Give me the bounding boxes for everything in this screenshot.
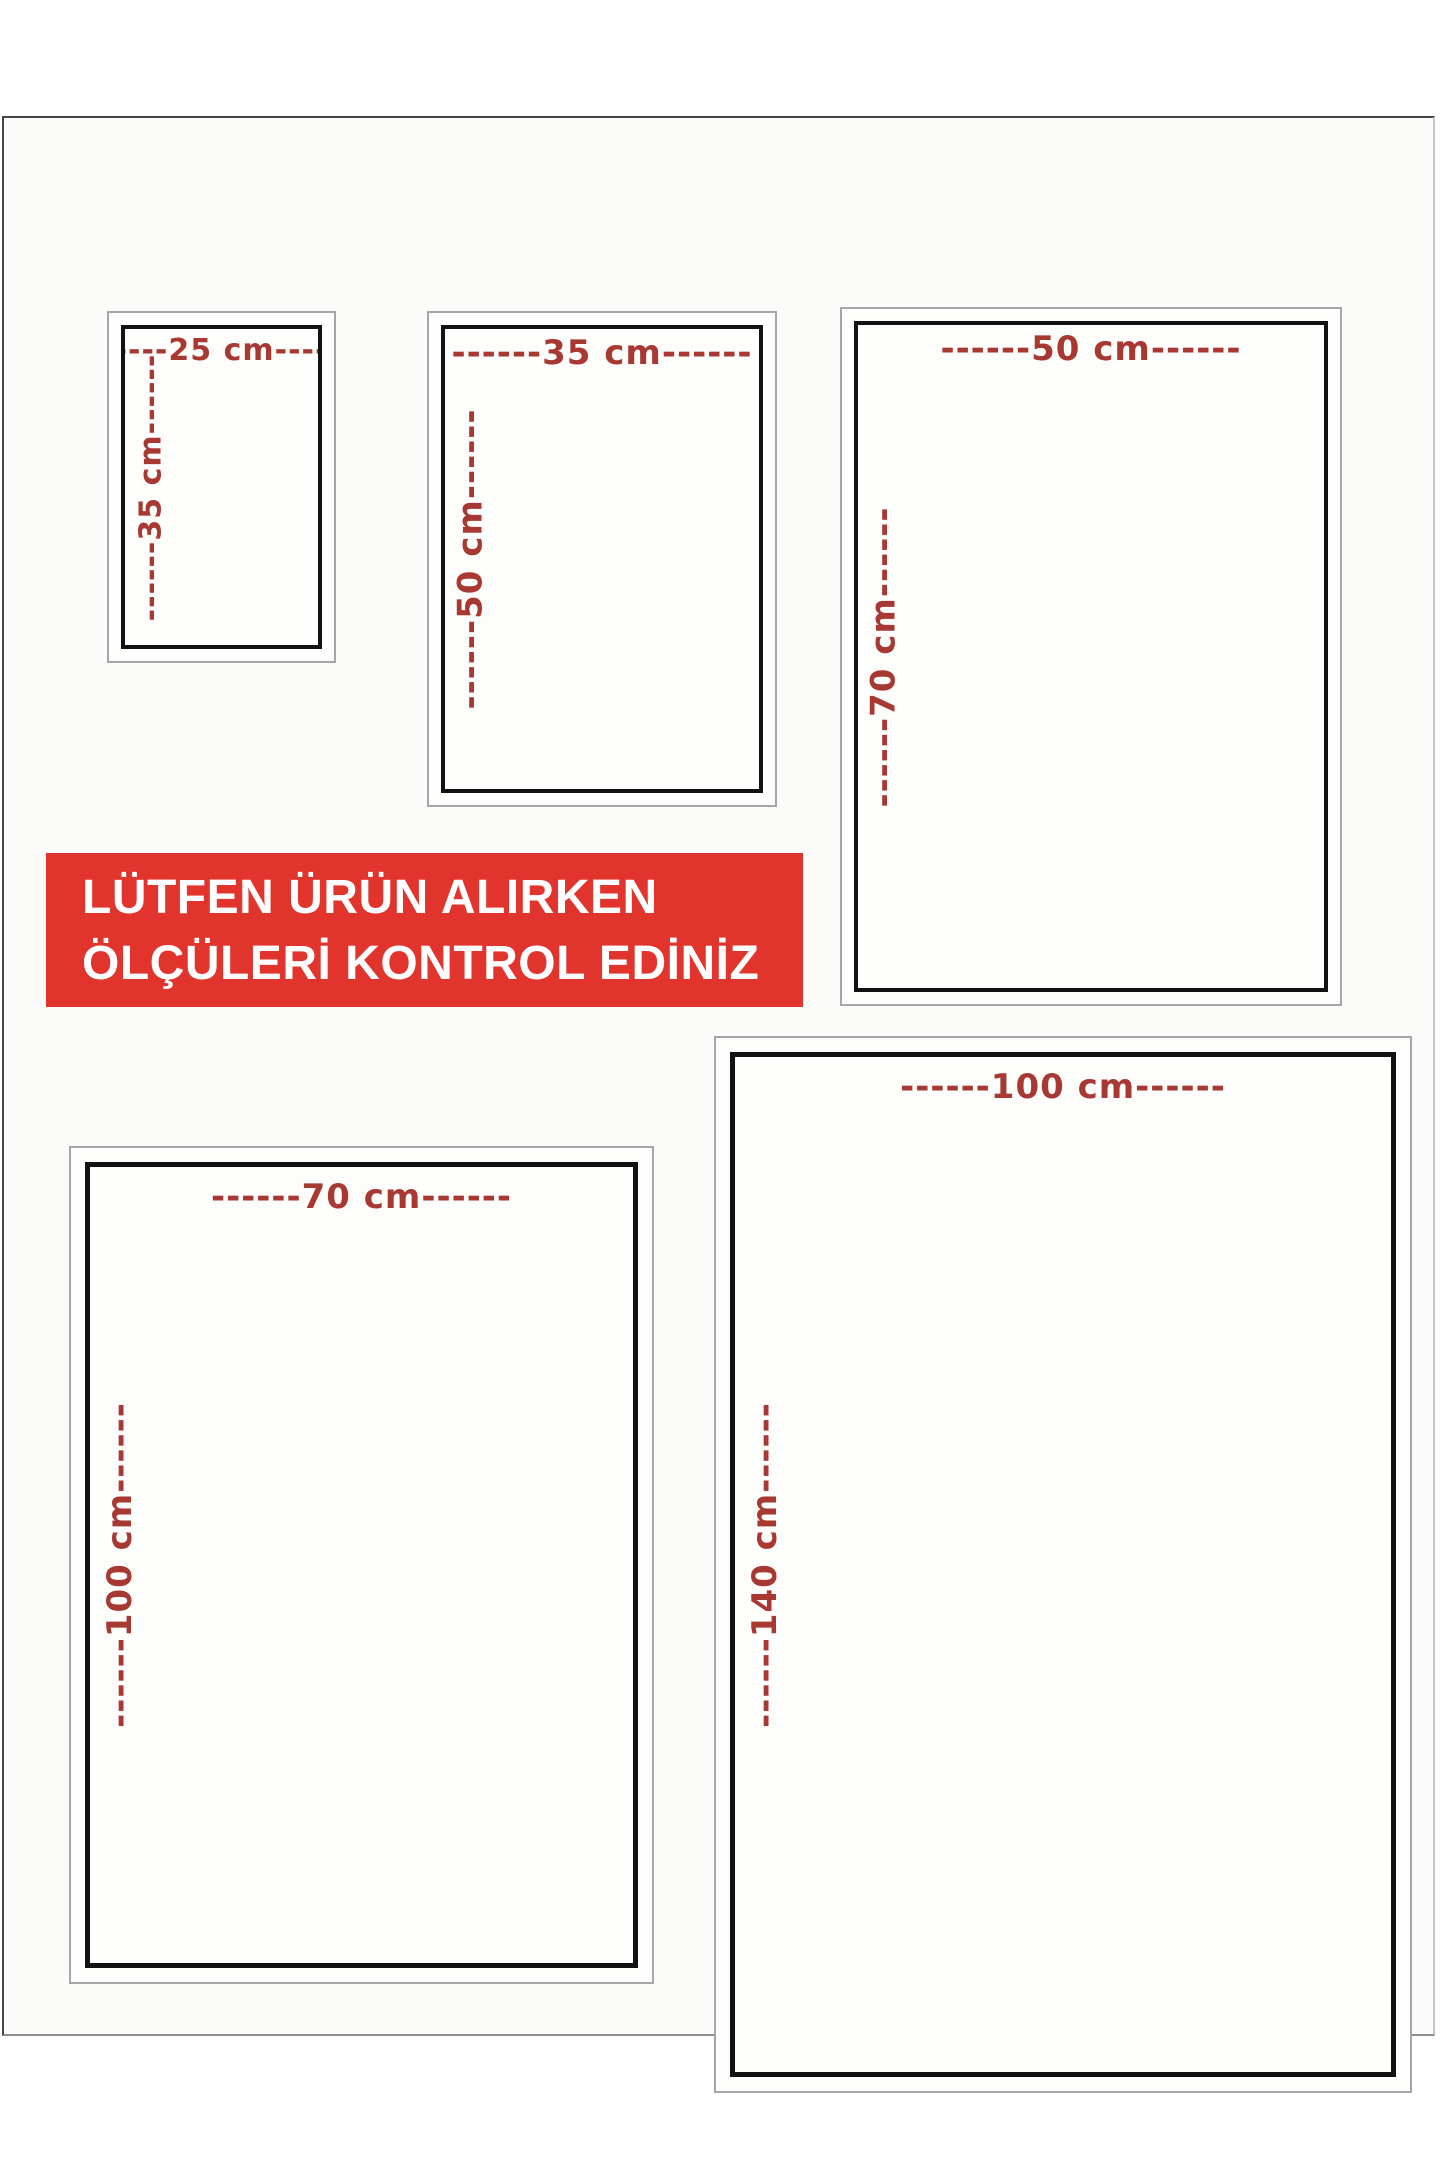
size-box-25x35: ------25 cm------ ------35 cm------ bbox=[107, 311, 336, 663]
width-dimension-label-35: ------35 cm------ bbox=[451, 333, 752, 373]
size-box-100x140: ------100 cm------ ------140 cm------ bbox=[714, 1036, 1412, 2093]
size-box-25x35-frame: ------25 cm------ ------35 cm------ bbox=[121, 325, 322, 649]
width-dimension-label-100: ------100 cm------ bbox=[900, 1067, 1226, 1107]
width-label-wrap: ------35 cm------ bbox=[445, 333, 759, 373]
height-dimension-label-70: ------70 cm------ bbox=[864, 506, 904, 807]
width-label-wrap: ------70 cm------ bbox=[90, 1177, 633, 1217]
size-box-70x100: ------70 cm------ ------100 cm------ bbox=[69, 1146, 654, 1984]
size-box-35x50-frame: ------35 cm------ ------50 cm------ bbox=[441, 325, 763, 793]
width-dimension-label-50: ------50 cm------ bbox=[940, 329, 1241, 369]
warning-banner-line1: LÜTFEN ÜRÜN ALIRKEN bbox=[82, 865, 803, 931]
height-dimension-label-140: ------140 cm------ bbox=[745, 1402, 785, 1728]
width-label-wrap: ------50 cm------ bbox=[858, 329, 1324, 369]
height-dimension-label-35: ------35 cm------ bbox=[134, 353, 169, 621]
size-chart-sheet: ------25 cm------ ------35 cm------ ----… bbox=[2, 116, 1435, 2036]
size-box-70x100-frame: ------70 cm------ ------100 cm------ bbox=[85, 1162, 638, 1968]
size-box-50x70-frame: ------50 cm------ ------70 cm------ bbox=[854, 321, 1328, 992]
height-dimension-label-100: ------100 cm------ bbox=[100, 1402, 140, 1728]
warning-banner: LÜTFEN ÜRÜN ALIRKEN ÖLÇÜLERİ KONTROL EDİ… bbox=[46, 853, 803, 1007]
warning-banner-line2: ÖLÇÜLERİ KONTROL EDİNİZ bbox=[82, 931, 803, 997]
width-dimension-label-70: ------70 cm------ bbox=[211, 1177, 512, 1217]
size-box-50x70: ------50 cm------ ------70 cm------ bbox=[840, 307, 1342, 1006]
size-box-100x140-frame: ------100 cm------ ------140 cm------ bbox=[730, 1052, 1396, 2077]
width-label-wrap: ------100 cm------ bbox=[735, 1067, 1391, 1107]
height-dimension-label-50: ------50 cm------ bbox=[451, 408, 491, 709]
size-box-35x50: ------35 cm------ ------50 cm------ bbox=[427, 311, 777, 807]
